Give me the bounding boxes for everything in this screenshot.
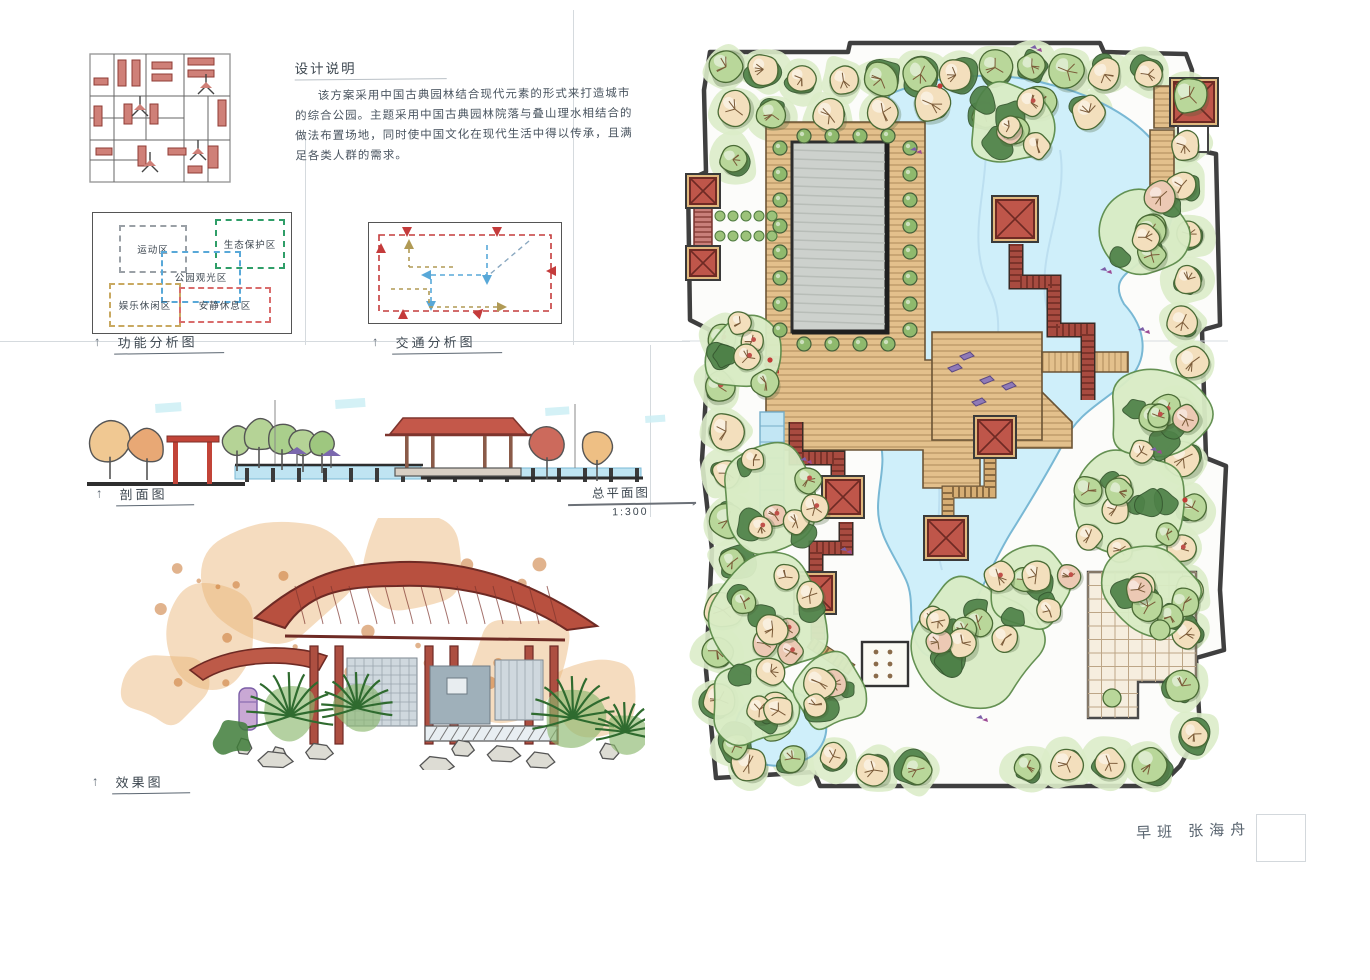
masterplan-label: 总平面图 → 1:300 bbox=[568, 481, 697, 519]
traffic-flow-arrows bbox=[369, 223, 561, 323]
up-arrow-icon: ↑ bbox=[96, 486, 106, 501]
up-arrow-icon: ↑ bbox=[94, 334, 104, 349]
masterplan-title: 总平面图 bbox=[568, 486, 650, 501]
signature: 早班 张海舟 bbox=[1136, 818, 1252, 843]
function-analysis-diagram: 运动区 生态保护区 公园观光区 娱乐休闲区 安静休息区 bbox=[92, 212, 292, 334]
design-notes: 设计说明 该方案采用中国古典园林结合现代元素的形式来打造城市的综合公园。主题采用… bbox=[295, 55, 634, 167]
traffic-analysis-diagram bbox=[368, 222, 562, 324]
traffic-diagram-label: ↑交通分析图 bbox=[372, 331, 502, 352]
perspective-label: ↑效果图 bbox=[92, 771, 190, 791]
perspective-sketch bbox=[95, 518, 645, 770]
design-board-sheet: { "notes": { "title": "设计说明", "body": "该… bbox=[0, 0, 1370, 980]
function-diagram-label: ↑功能分析图 bbox=[94, 331, 224, 352]
site-context-grid-diagram bbox=[88, 48, 233, 190]
masterplan-drawing bbox=[680, 30, 1230, 810]
up-arrow-icon: ↑ bbox=[92, 774, 102, 789]
masterplan-scale: 1:300 bbox=[568, 504, 696, 518]
up-arrow-icon: ↑ bbox=[372, 334, 382, 349]
design-notes-body: 该方案采用中国古典园林结合现代元素的形式来打造城市的综合公园。主题采用中国古典园… bbox=[295, 84, 634, 167]
section-label: ↑剖面图 bbox=[96, 483, 194, 503]
function-zone-leisure: 娱乐休闲区 bbox=[109, 283, 181, 327]
design-notes-title: 设计说明 bbox=[295, 56, 447, 80]
signature-box bbox=[1256, 814, 1306, 862]
function-zone-quiet-rest: 安静休息区 bbox=[179, 287, 271, 323]
